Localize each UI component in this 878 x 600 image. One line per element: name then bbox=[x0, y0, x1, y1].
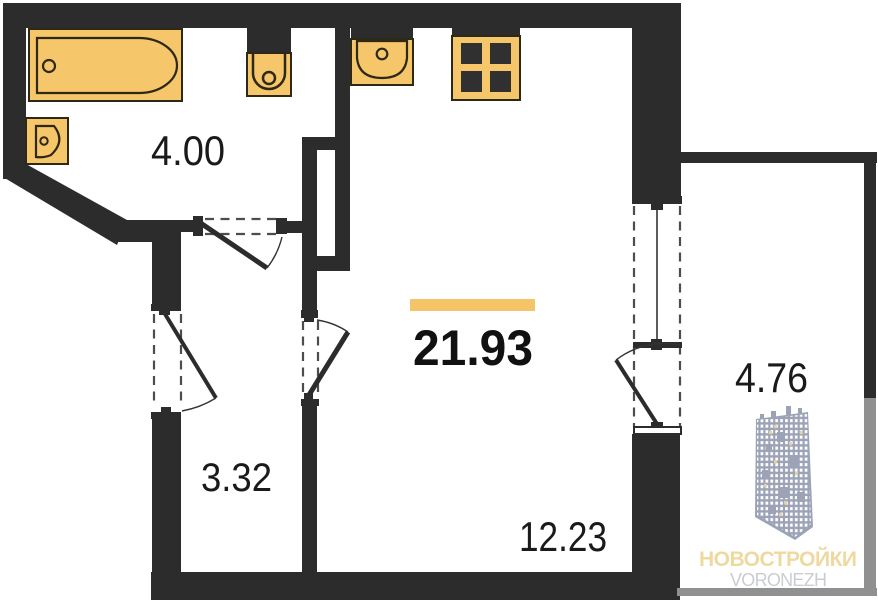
svg-text:4.76: 4.76 bbox=[735, 354, 808, 401]
svg-text:VORONEZH: VORONEZH bbox=[730, 570, 827, 590]
svg-text:НОВОСТРОЙКИ: НОВОСТРОЙКИ bbox=[699, 547, 857, 571]
svg-text:4.00: 4.00 bbox=[151, 127, 225, 174]
svg-text:12.23: 12.23 bbox=[519, 513, 607, 560]
svg-text:21.93: 21.93 bbox=[413, 320, 533, 376]
svg-text:3.32: 3.32 bbox=[201, 456, 272, 500]
